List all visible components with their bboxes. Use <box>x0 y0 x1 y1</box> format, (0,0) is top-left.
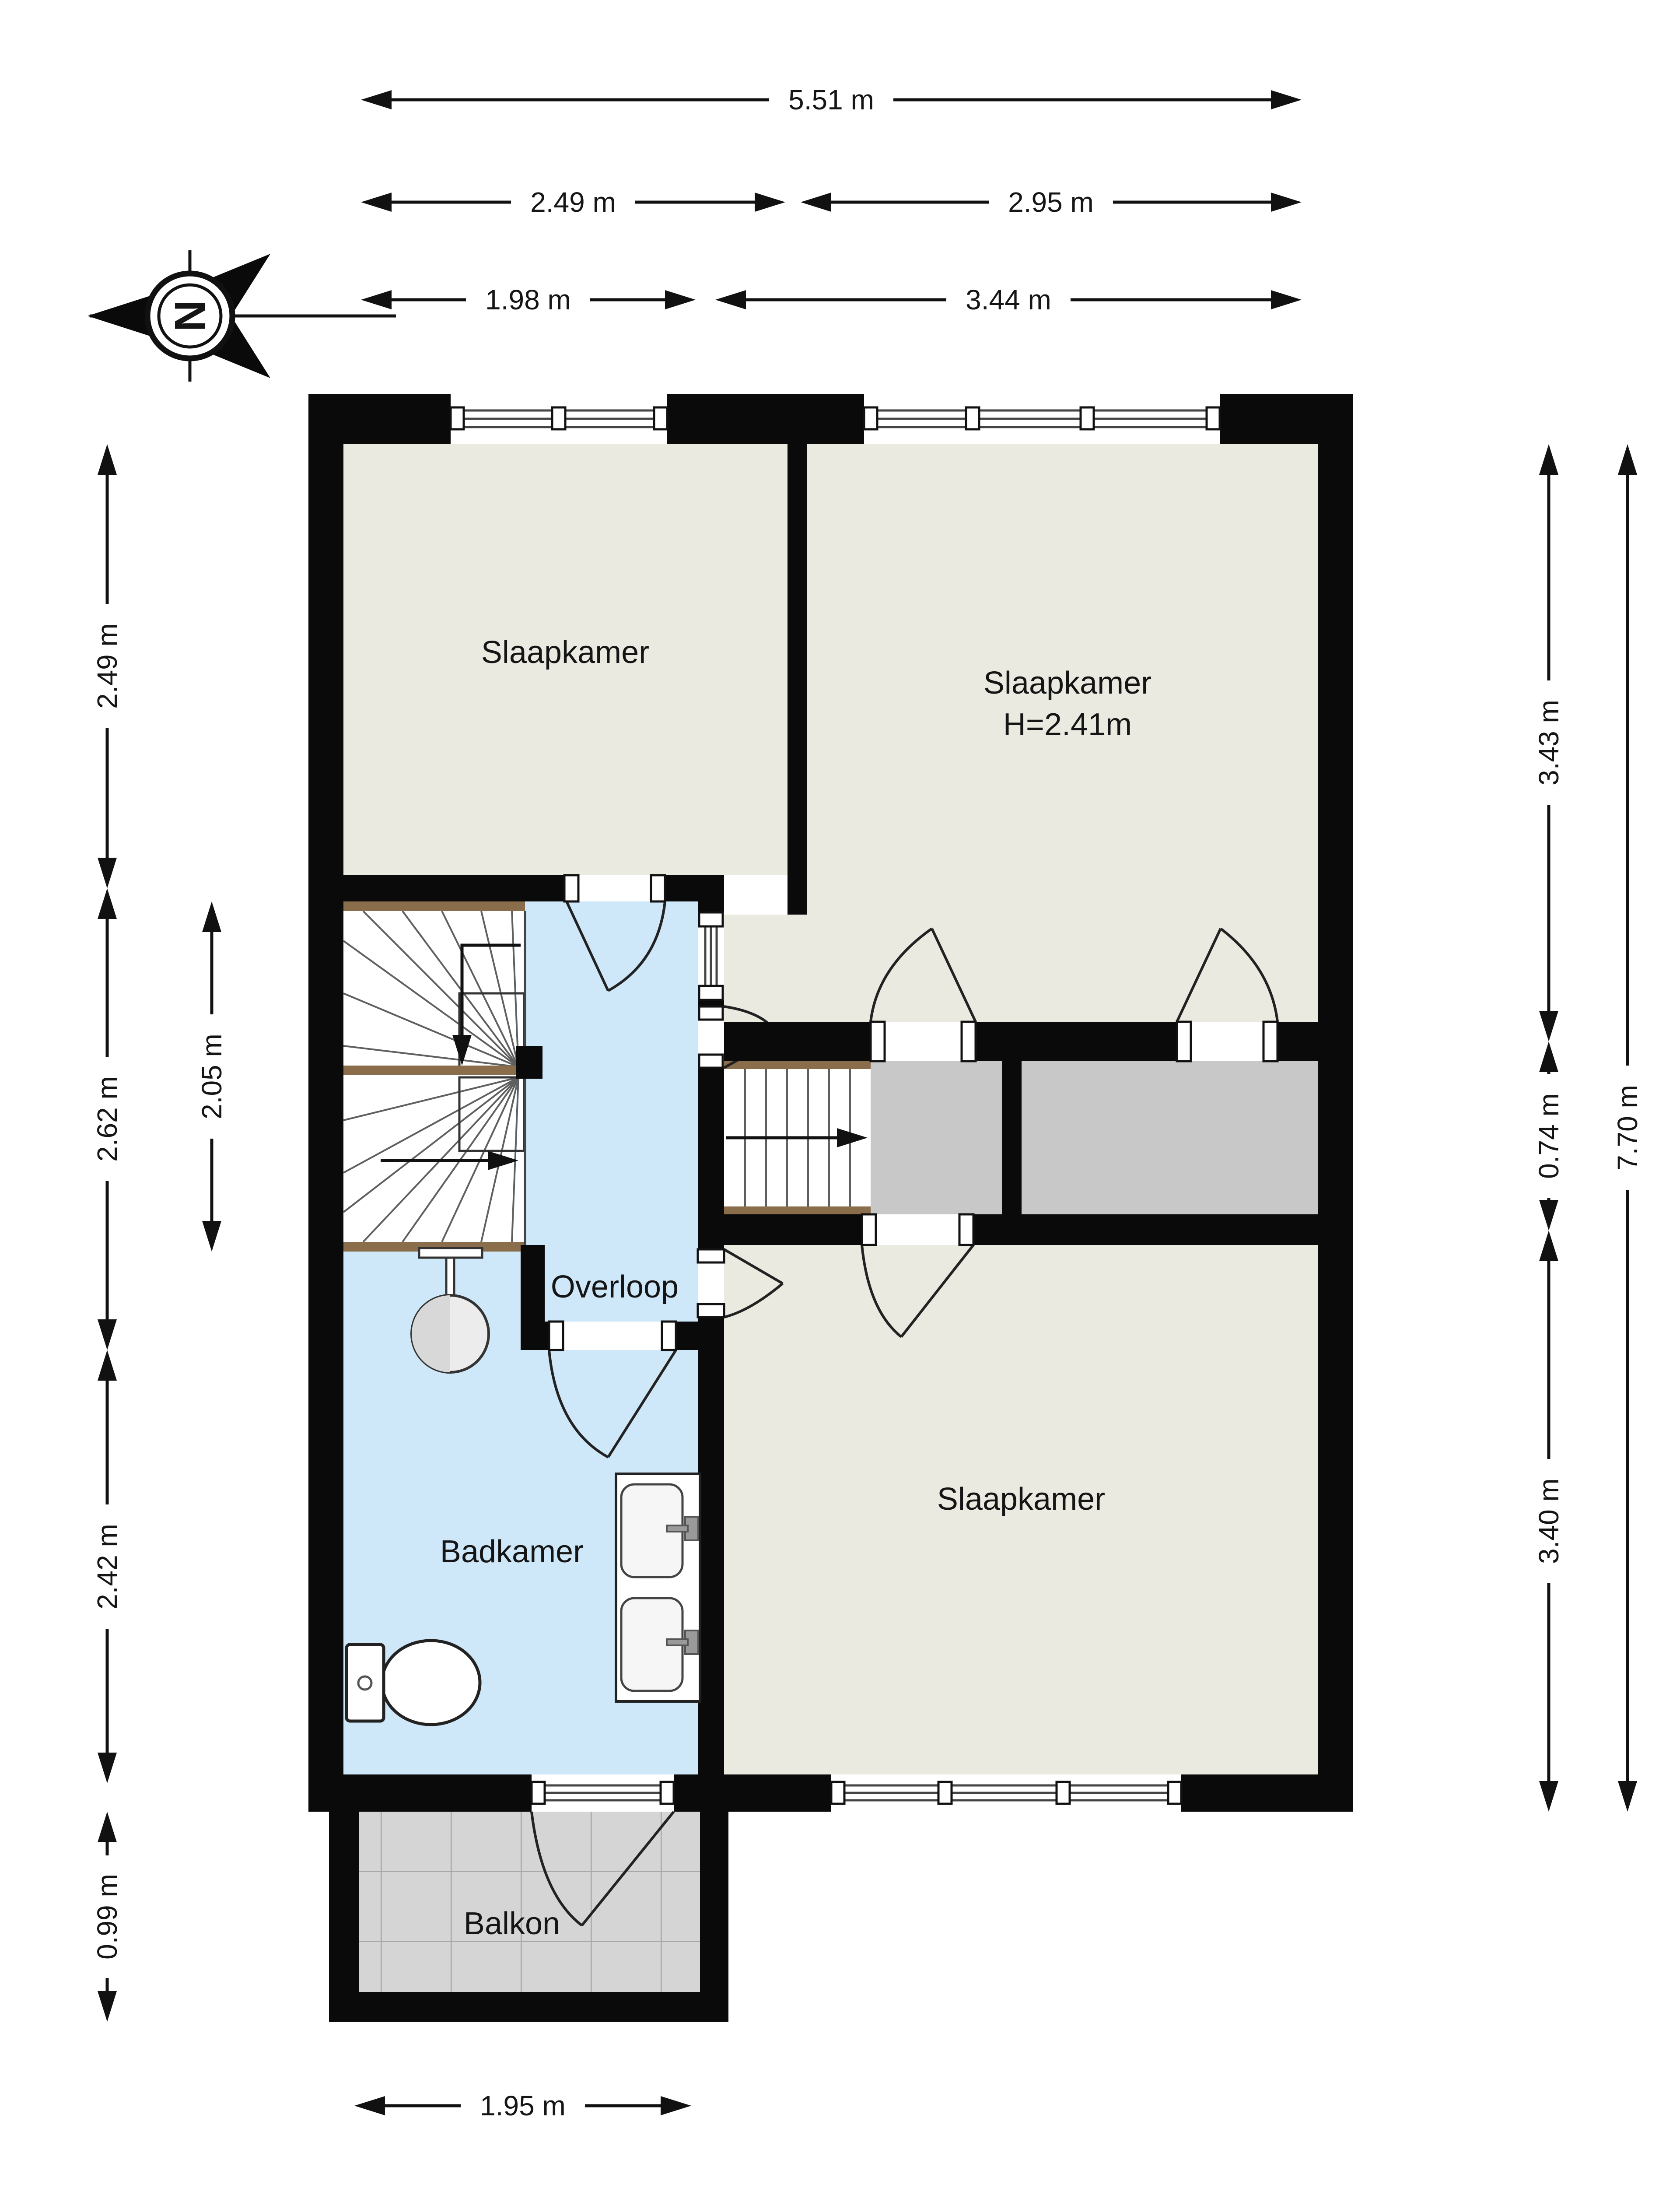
balcony-door-glazing <box>532 1778 674 1809</box>
label-badkamer: Badkamer <box>440 1534 584 1569</box>
dim-label-left-middle: 2.62 m <box>91 1076 123 1162</box>
label-bedroom-bottom: Slaapkamer <box>937 1482 1105 1517</box>
room-overloop <box>525 901 698 1322</box>
corridor-void-right <box>1022 1061 1318 1214</box>
dim-label-top-left: 2.49 m <box>530 186 616 218</box>
dim-label-top-inner-right: 3.44 m <box>966 284 1051 316</box>
dim-label-left-upper: 2.49 m <box>91 623 123 709</box>
compass-north-label: N <box>165 300 214 332</box>
dim-label-left-lower: 2.42 m <box>91 1524 123 1609</box>
dim-label-top-inner-left: 1.98 m <box>485 284 571 316</box>
window-top-left <box>451 397 667 441</box>
balcony-tiles <box>359 1812 700 1992</box>
window-overloop-interior <box>699 912 723 1000</box>
toilet <box>346 1641 480 1725</box>
room-bedroom-top-right-alcove <box>724 915 807 1022</box>
floorplan: N <box>0 0 1680 2188</box>
label-balkon: Balkon <box>464 1906 560 1941</box>
window-bottom <box>831 1778 1181 1809</box>
label-bedroom-top-right-height: H=2.41m <box>1003 707 1132 742</box>
dim-label-right-lower: 3.40 m <box>1533 1478 1564 1564</box>
dim-label-right-total: 7.70 m <box>1612 1085 1643 1171</box>
straight-staircase <box>724 1061 871 1214</box>
corridor-void-left <box>871 1061 1002 1214</box>
label-bedroom-top-left: Slaapkamer <box>481 635 649 670</box>
dim-label-top-right: 2.95 m <box>1008 186 1094 218</box>
dim-label-left-stairs: 2.05 m <box>196 1034 227 1119</box>
stair-landing-post <box>516 1046 542 1079</box>
dim-label-right-middle: 0.74 m <box>1533 1093 1564 1179</box>
dim-label-right-upper: 3.43 m <box>1533 700 1564 785</box>
winder-staircase <box>343 901 542 1252</box>
compass: N <box>87 250 396 382</box>
dim-label-bottom-balcony: 1.95 m <box>480 2090 566 2121</box>
label-overloop: Overloop <box>551 1269 679 1304</box>
label-bedroom-top-right: Slaapkamer <box>983 666 1151 701</box>
dim-label-top-total: 5.51 m <box>788 84 874 116</box>
double-sink <box>616 1474 700 1701</box>
dim-label-left-balcony: 0.99 m <box>91 1874 123 1960</box>
window-top-right <box>864 397 1220 441</box>
